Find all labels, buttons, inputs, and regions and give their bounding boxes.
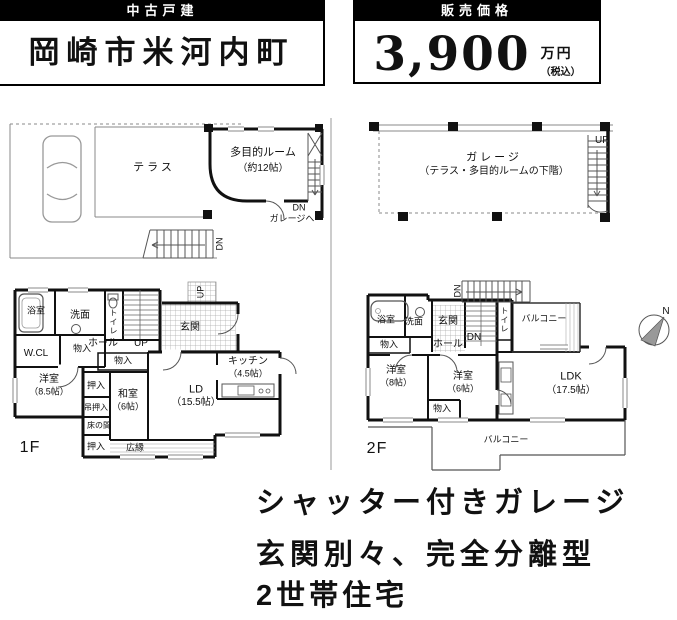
- flyer-page: 中古戸建 岡崎市米河内町 販売価格 3,900 万円 （税込） テラス 多目的ル…: [0, 0, 677, 620]
- porch-up-label-1f: UP: [197, 286, 206, 299]
- engawa-label: 広縁: [126, 444, 144, 453]
- oshiire-bottom-label: 押入: [87, 443, 105, 452]
- stairs-up-label-1f: UP: [134, 339, 148, 349]
- kitchen-label-1f: キッチン: [228, 357, 268, 367]
- outer-dn-label-2f: DN: [454, 285, 463, 298]
- western-room-size-label-1f: （8.5帖）: [29, 388, 69, 397]
- bath-label-2f: 浴室: [377, 316, 395, 325]
- compass-north-label: N: [662, 307, 669, 317]
- terrace-label: テラス: [133, 163, 175, 174]
- car-icon: [43, 136, 81, 222]
- stairs-dn-label-2f: DN: [467, 333, 481, 343]
- address-text: 岡崎市米河内町: [0, 21, 325, 86]
- price-unit-block: 万円 （税込）: [541, 43, 581, 78]
- price-amount: 3,900: [373, 31, 530, 78]
- wcl-label: W.CL: [24, 349, 48, 359]
- price-header: 販売価格: [353, 0, 601, 21]
- floor2-label: 2F: [367, 441, 388, 457]
- floor1-label: 1F: [20, 440, 41, 456]
- wash-label-1f: 洗面: [70, 311, 90, 321]
- price-tax-note: （税込）: [541, 63, 581, 78]
- to-garage-label: ガレージへ: [270, 215, 315, 224]
- balcony-top-label: バルコニー: [522, 315, 567, 324]
- toilet-label-2f: トイレ: [500, 307, 508, 334]
- western-room-6-size-label: （6帖）: [447, 385, 479, 394]
- ldk-size-label: （17.5帖）: [546, 386, 595, 396]
- tokonoma-label: 床の間: [87, 422, 111, 430]
- bath-label-1f: 浴室: [27, 307, 45, 316]
- hanging-closet-label: 吊押入: [84, 404, 108, 412]
- price-body: 3,900 万円 （税込）: [353, 21, 601, 84]
- ldk-label: LDK: [560, 372, 581, 383]
- western-room-8-label: 洋室: [386, 366, 406, 376]
- catchcopy-line1: シャッター付きガレージ: [256, 488, 629, 520]
- dn-to-garage-label: DN: [293, 204, 306, 213]
- storage-mid-label-2f: 物入: [433, 405, 451, 414]
- western-room-6-label: 洋室: [453, 372, 473, 382]
- terrace-plan: [10, 124, 324, 258]
- washbasin-icon-2f: [416, 308, 425, 317]
- floorplan-drawing: [0, 0, 677, 620]
- washbasin-icon: [72, 325, 81, 334]
- ld-size-label: （15.5帖）: [171, 398, 220, 408]
- hall-label-2f: ホール: [433, 340, 463, 350]
- storage-left-label-2f: 物入: [380, 341, 398, 350]
- ld-label: LD: [189, 385, 203, 396]
- price-box: 販売価格 3,900 万円 （税込）: [353, 0, 601, 84]
- wash-label-2f: 洗面: [405, 318, 423, 327]
- western-room-label-1f: 洋室: [39, 375, 59, 385]
- entrance-label-2f: 玄関: [438, 317, 458, 327]
- kitchen-size-label-1f: （4.5帖）: [228, 370, 268, 379]
- entrance-tile-1f: [162, 303, 238, 352]
- address-box: 中古戸建 岡崎市米河内町: [0, 0, 325, 86]
- storage-wide-label-1f: 物入: [114, 357, 132, 366]
- japanese-room-label: 和室: [118, 390, 138, 400]
- property-type-header: 中古戸建: [0, 0, 325, 21]
- price-unit: 万円: [541, 43, 573, 63]
- japanese-room-size-label: （6帖）: [112, 403, 144, 412]
- garage-label: ガレージ: [466, 153, 522, 164]
- western-room-8-size-label: （8帖）: [380, 379, 412, 388]
- multipurpose-room-label: 多目的ルーム: [230, 148, 296, 159]
- oshiire-top-label: 押入: [87, 382, 105, 391]
- compass-icon: [639, 315, 669, 346]
- garage-up-label: UP: [595, 136, 609, 146]
- catchcopy-line2: 玄関別々、完全分離型: [256, 540, 596, 572]
- hall-label-1f: ホール: [88, 339, 118, 349]
- balcony-bottom-label: バルコニー: [484, 436, 529, 445]
- toilet-label-1f: トイレ: [109, 309, 117, 336]
- outdoor-stair-dn-label: DN: [216, 238, 225, 251]
- entrance-label-1f: 玄関: [180, 323, 200, 333]
- multipurpose-size-label: （約12帖）: [237, 164, 288, 174]
- garage-note-label: （テラス・多目的ルームの下階）: [419, 167, 569, 177]
- catchcopy-line3: 2世帯住宅: [256, 581, 408, 613]
